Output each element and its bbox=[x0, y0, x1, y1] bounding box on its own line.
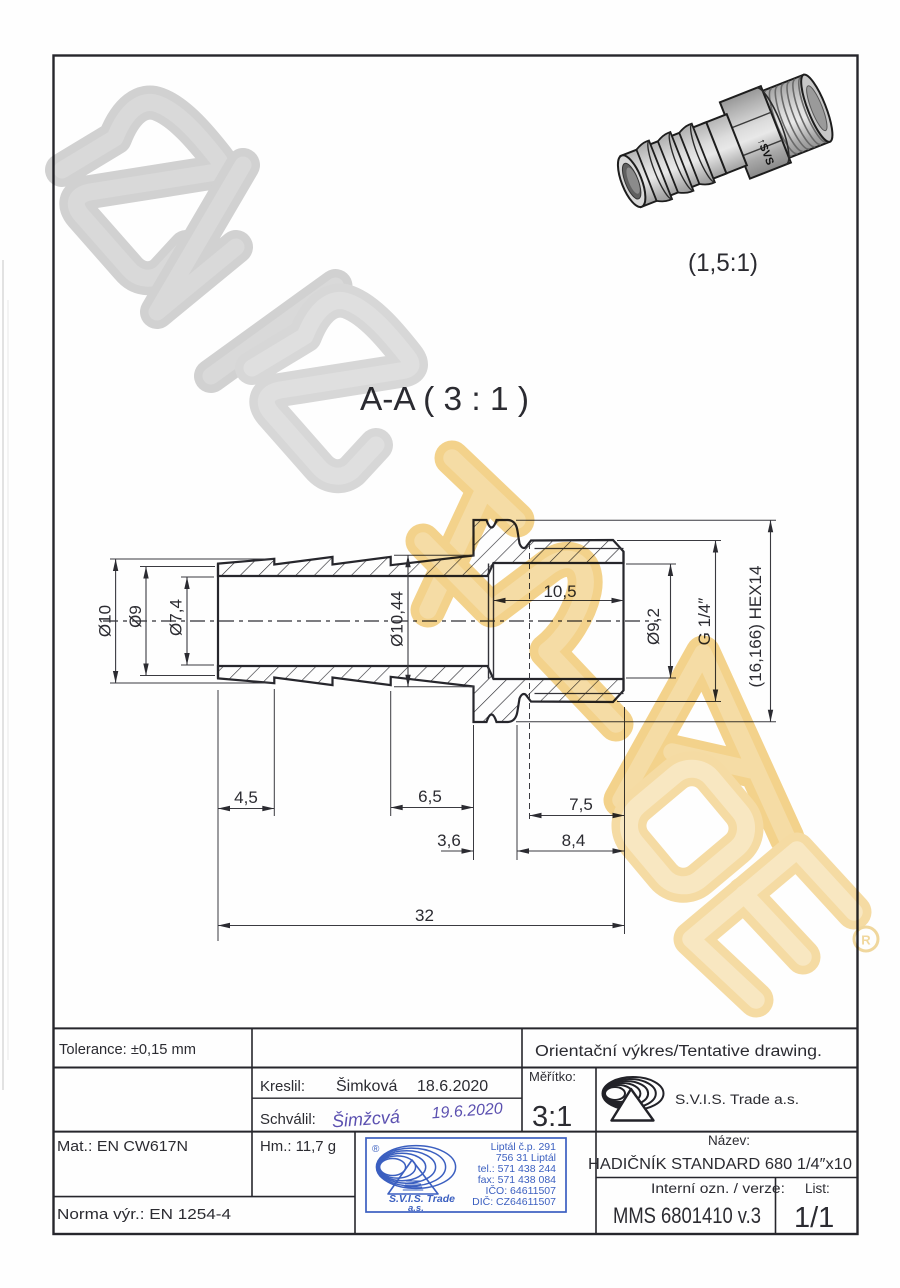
svg-text:3:1: 3:1 bbox=[532, 1101, 572, 1133]
svg-text:R: R bbox=[861, 933, 871, 948]
svg-text:(16,166) HEX14: (16,166) HEX14 bbox=[746, 566, 765, 688]
svg-text:Ø9,2: Ø9,2 bbox=[644, 608, 663, 645]
svg-text:18.6.2020: 18.6.2020 bbox=[417, 1078, 488, 1095]
svg-text:6,5: 6,5 bbox=[418, 787, 442, 806]
svg-text:4,5: 4,5 bbox=[234, 788, 258, 807]
svg-text:Ø10: Ø10 bbox=[96, 605, 115, 637]
svg-text:DIČ: CZ64611507: DIČ: CZ64611507 bbox=[472, 1195, 556, 1208]
svg-text:Název:: Název: bbox=[708, 1133, 750, 1148]
svg-text:Orientační výkres/Tentative dr: Orientační výkres/Tentative drawing. bbox=[535, 1043, 822, 1060]
svg-text:a.s.: a.s. bbox=[408, 1203, 424, 1214]
svg-text:List:: List: bbox=[805, 1181, 830, 1196]
svg-text:Kreslil:: Kreslil: bbox=[260, 1078, 305, 1095]
svg-text:®: ® bbox=[372, 1144, 380, 1155]
svg-text:7,5: 7,5 bbox=[569, 795, 593, 814]
svg-text:Ø7,4: Ø7,4 bbox=[167, 599, 186, 636]
svg-text:Šimková: Šimková bbox=[336, 1076, 397, 1095]
svg-text:Mat.: EN CW617N: Mat.: EN CW617N bbox=[57, 1138, 188, 1155]
svg-text:MMS 6801410 v.3: MMS 6801410 v.3 bbox=[613, 1203, 761, 1228]
svg-text:(1,5:1): (1,5:1) bbox=[688, 249, 758, 277]
svg-text:Hm.: 11,7 g: Hm.: 11,7 g bbox=[260, 1138, 336, 1155]
svg-text:HADIČNÍK STANDARD 680 1/4″x10: HADIČNÍK STANDARD 680 1/4″x10 bbox=[588, 1154, 852, 1173]
svg-text:Interní ozn. / verze:: Interní ozn. / verze: bbox=[651, 1181, 785, 1196]
svg-text:Měřítko:: Měřítko: bbox=[529, 1069, 576, 1084]
svg-text:1/1: 1/1 bbox=[794, 1202, 834, 1234]
svg-text:3,6: 3,6 bbox=[437, 831, 461, 850]
svg-text:Ø9: Ø9 bbox=[126, 605, 145, 628]
svg-text:Ø10,44: Ø10,44 bbox=[388, 591, 407, 647]
svg-text:Tolerance: ±0,15 mm: Tolerance: ±0,15 mm bbox=[59, 1041, 196, 1058]
svg-text:S.V.I.S. Trade a.s.: S.V.I.S. Trade a.s. bbox=[675, 1092, 799, 1107]
svg-text:Norma výr.: EN 1254-4: Norma výr.: EN 1254-4 bbox=[57, 1206, 231, 1223]
svg-text:8,4: 8,4 bbox=[562, 831, 586, 850]
svg-text:Schválil:: Schválil: bbox=[260, 1111, 316, 1128]
svg-text:32: 32 bbox=[415, 906, 434, 925]
